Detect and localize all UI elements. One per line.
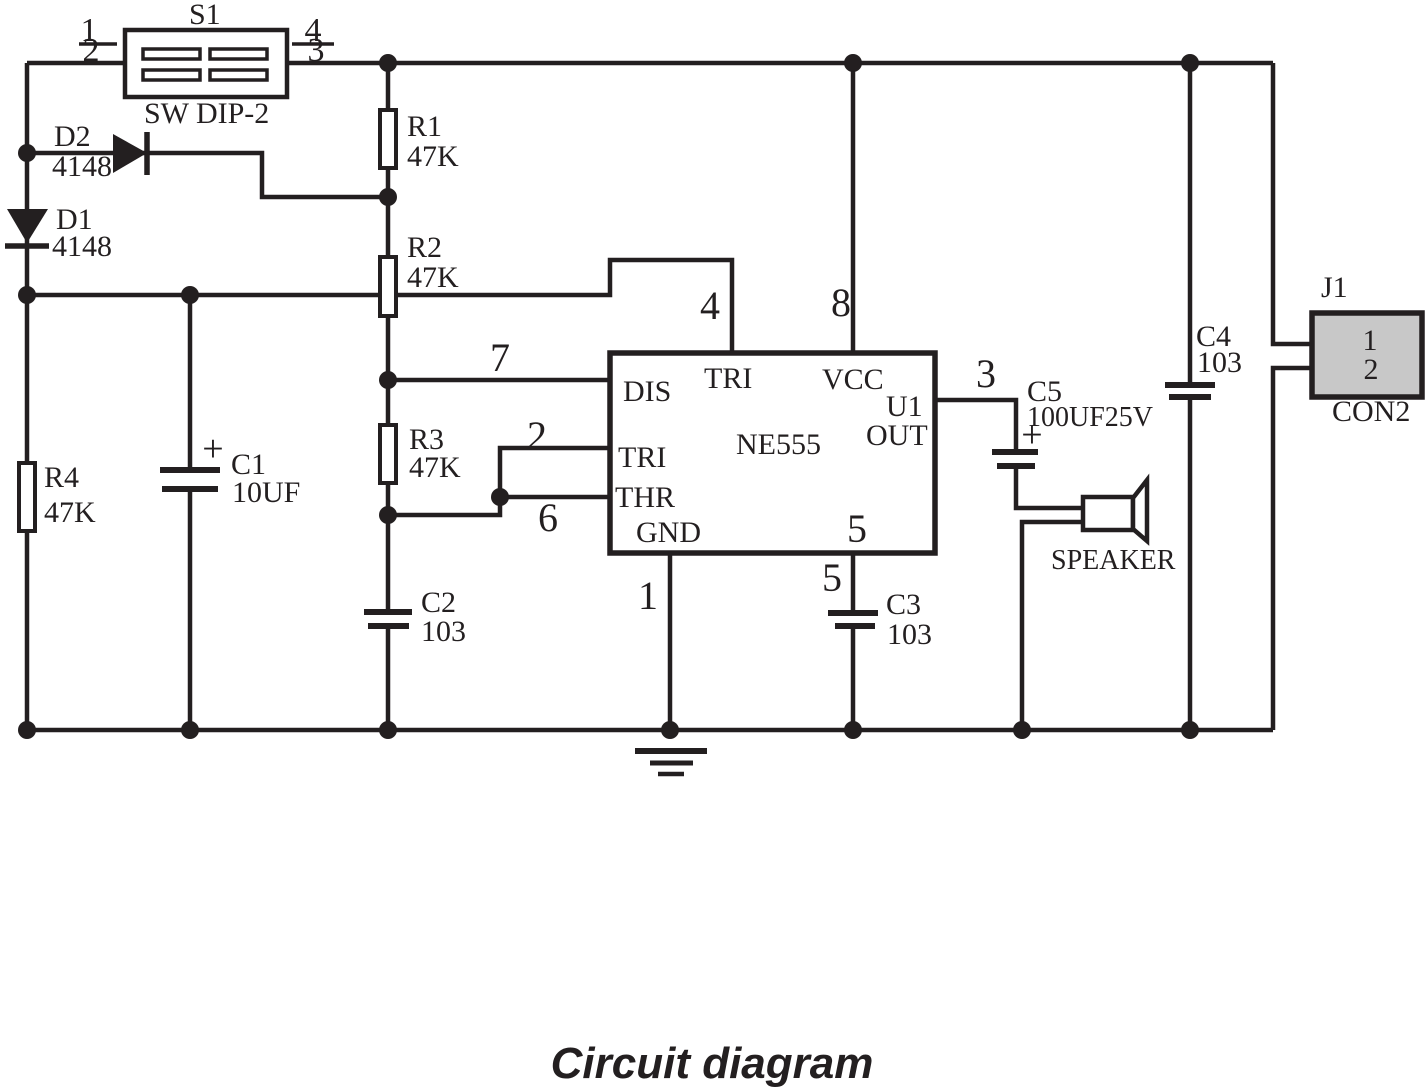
c2-value-label: 103 bbox=[421, 615, 466, 648]
junction-dot bbox=[1181, 54, 1199, 72]
pin3-number: 3 bbox=[976, 351, 996, 396]
pin8-number: 8 bbox=[831, 280, 851, 325]
r1-body bbox=[380, 110, 396, 168]
d1-value-label: 4148 bbox=[52, 230, 112, 263]
capacitor-c3: C3 103 bbox=[828, 588, 932, 651]
junction-dot bbox=[1013, 721, 1031, 739]
c2-plates bbox=[364, 612, 412, 626]
resistor-r3: R3 47K bbox=[380, 423, 461, 484]
circuit-diagram: 1 2 4 3 S1 SW DIP-2 D2 4148 D1 4148 R1 4… bbox=[0, 0, 1425, 1090]
u1-pin-thr-label: THR bbox=[615, 481, 675, 514]
junction-dot bbox=[379, 506, 397, 524]
diode-d1: D1 4148 bbox=[5, 203, 112, 263]
connector-j1: J1 1 2 CON2 bbox=[1312, 271, 1422, 428]
d2-value-label: 4148 bbox=[52, 150, 112, 183]
speaker-cone bbox=[1133, 480, 1147, 541]
pin1-number: 1 bbox=[638, 573, 658, 618]
r1-ref-label: R1 bbox=[407, 110, 442, 143]
pin5-number-outside: 5 bbox=[822, 555, 842, 600]
r4-ref-label: R4 bbox=[44, 461, 79, 494]
capacitor-c2: C2 103 bbox=[364, 586, 466, 648]
r2-body bbox=[380, 257, 396, 316]
c1-value-label: 10UF bbox=[232, 476, 300, 509]
d2-anode-triangle bbox=[113, 134, 147, 173]
j1-ref-label: J1 bbox=[1321, 271, 1348, 304]
u1-pin-out-label: OUT bbox=[866, 419, 928, 452]
u1-pin-tri-label: TRI bbox=[618, 441, 666, 474]
junction-dot bbox=[1181, 721, 1199, 739]
pin4-number: 4 bbox=[700, 283, 720, 328]
d2-ref-label: D2 bbox=[54, 120, 91, 153]
u1-pin-tri-top-label: TRI bbox=[704, 362, 752, 395]
capacitor-c1: + C1 10UF bbox=[160, 428, 300, 509]
c5-polarity-mark: + bbox=[1021, 414, 1042, 456]
s1-part-label: SW DIP-2 bbox=[144, 97, 269, 130]
resistor-r2: R2 47K bbox=[380, 231, 459, 316]
c1-plates bbox=[160, 470, 220, 489]
c1-polarity-mark: + bbox=[202, 428, 223, 470]
s1-pin2-number: 2 bbox=[83, 32, 100, 69]
c3-ref-label: C3 bbox=[886, 588, 921, 621]
r4-value-label: 47K bbox=[44, 496, 96, 529]
pin2-number: 2 bbox=[527, 413, 547, 458]
pin6-number: 6 bbox=[538, 495, 558, 540]
junction-dot bbox=[844, 721, 862, 739]
j1-pin2-number: 2 bbox=[1364, 353, 1379, 386]
resistor-r1: R1 47K bbox=[380, 110, 459, 173]
junction-dot bbox=[181, 286, 199, 304]
pin7-number: 7 bbox=[490, 335, 510, 380]
s1-ref-label: S1 bbox=[189, 0, 221, 31]
d1-anode-triangle bbox=[7, 209, 48, 243]
ground-symbol bbox=[635, 751, 707, 774]
u1-pin5-number-inside: 5 bbox=[847, 506, 867, 551]
r2-value-label: 47K bbox=[407, 261, 459, 294]
r3-value-label: 47K bbox=[409, 451, 461, 484]
junction-dot bbox=[18, 144, 36, 162]
junction-dot bbox=[491, 488, 509, 506]
c3-value-label: 103 bbox=[887, 618, 932, 651]
r1-value-label: 47K bbox=[407, 140, 459, 173]
r3-body bbox=[380, 425, 396, 483]
u1-part-label: NE555 bbox=[736, 428, 821, 461]
u1-pin-gnd-label: GND bbox=[636, 516, 701, 549]
capacitor-c4: C4 103 bbox=[1165, 320, 1242, 397]
c5-value-label: 100UF25V bbox=[1027, 402, 1153, 433]
u1-pin-vcc-label: VCC bbox=[822, 363, 884, 396]
j1-part-label: CON2 bbox=[1332, 395, 1410, 428]
diode-d2: D2 4148 bbox=[52, 120, 147, 183]
resistor-r4: R4 47K bbox=[19, 461, 96, 531]
u1-pin-dis-label: DIS bbox=[623, 375, 671, 408]
junction-dot bbox=[379, 721, 397, 739]
junction-dot bbox=[379, 188, 397, 206]
junction-dot bbox=[18, 286, 36, 304]
junction-dot bbox=[181, 721, 199, 739]
r2-ref-label: R2 bbox=[407, 231, 442, 264]
ic-u1: DIS TRI VCC U1 OUT NE555 TRI THR GND 5 bbox=[610, 353, 935, 553]
s1-body bbox=[125, 30, 287, 97]
c4-value-label: 103 bbox=[1197, 346, 1242, 379]
junction-dot bbox=[379, 54, 397, 72]
caption: Circuit diagram bbox=[551, 1039, 874, 1088]
r4-body bbox=[19, 463, 35, 531]
speaker: SPEAKER bbox=[1051, 480, 1176, 576]
junction-dot bbox=[661, 721, 679, 739]
wire-j1-links bbox=[1273, 63, 1312, 730]
junction-dot bbox=[18, 721, 36, 739]
s1-pin3-number: 3 bbox=[308, 32, 325, 69]
c3-plates bbox=[828, 613, 878, 626]
speaker-body bbox=[1083, 497, 1133, 530]
junction-dot bbox=[844, 54, 862, 72]
speaker-label: SPEAKER bbox=[1051, 545, 1176, 576]
c4-plates bbox=[1165, 385, 1215, 397]
junction-dot bbox=[379, 371, 397, 389]
